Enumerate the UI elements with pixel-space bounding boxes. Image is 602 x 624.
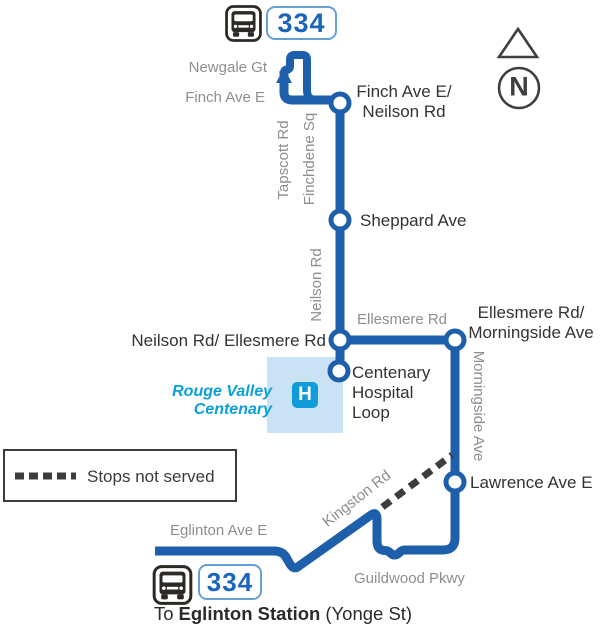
- street-label-newgale: Newgale Gt: [189, 59, 267, 77]
- compass-north-letter: N: [509, 72, 529, 103]
- stop-marker-neilson-ellesmere: [331, 331, 349, 349]
- destination-text: To Eglinton Station (Yonge St): [154, 603, 412, 624]
- stop-label-centenary-loop: Centenary Hospital Loop: [352, 363, 430, 423]
- stop-marker-centenary-loop: [330, 362, 348, 380]
- route-number: 334: [277, 8, 325, 39]
- destination-station: Eglinton Station: [179, 603, 321, 624]
- stop-marker-sheppard: [331, 211, 349, 229]
- hospital-name: Rouge Valley Centenary: [172, 383, 272, 419]
- route-number: 334: [207, 567, 253, 598]
- route-number-badge-top: 334: [266, 6, 337, 40]
- stop-marker-lawrence: [446, 473, 464, 491]
- stop-marker-finch-neilson: [331, 94, 349, 112]
- route-line-terminal-loop: [284, 55, 332, 100]
- route-number-badge-bottom: 334: [198, 564, 262, 600]
- street-label-ellesmere: Ellesmere Rd: [357, 311, 447, 329]
- transit-route-map: N 334 Newgale Gt Finch Ave E Tapscott Rd…: [0, 0, 602, 624]
- stop-label-lawrence: Lawrence Ave E: [470, 473, 593, 493]
- street-label-eglinton: Eglinton Ave E: [170, 522, 267, 540]
- stop-label-neilson-ellesmere: Neilson Rd/ Ellesmere Rd: [131, 331, 326, 351]
- street-label-morningside: Morningside Ave: [469, 351, 487, 462]
- street-label-tapscott: Tapscott Rd: [275, 120, 293, 199]
- bus-icon: [225, 5, 262, 42]
- destination-suffix: (Yonge St): [325, 603, 412, 624]
- street-label-finch: Finch Ave E: [185, 89, 265, 107]
- stop-label-ellesmere-morningside: Ellesmere Rd/ Morningside Ave: [462, 303, 600, 343]
- street-label-guildwood: Guildwood Pkwy: [354, 570, 465, 588]
- legend-stops-not-served-label: Stops not served: [87, 467, 215, 487]
- street-label-neilson: Neilson Rd: [308, 248, 326, 321]
- stop-label-sheppard: Sheppard Ave: [360, 211, 467, 231]
- triangle-up-icon: [499, 29, 537, 57]
- street-label-finchdene: Finchdene Sq: [301, 113, 319, 206]
- h-square-icon: H: [292, 382, 318, 408]
- stop-label-finch-neilson: Finch Ave E/ Neilson Rd: [352, 82, 456, 122]
- destination-prefix: To: [154, 603, 174, 624]
- bus-icon: [152, 565, 193, 605]
